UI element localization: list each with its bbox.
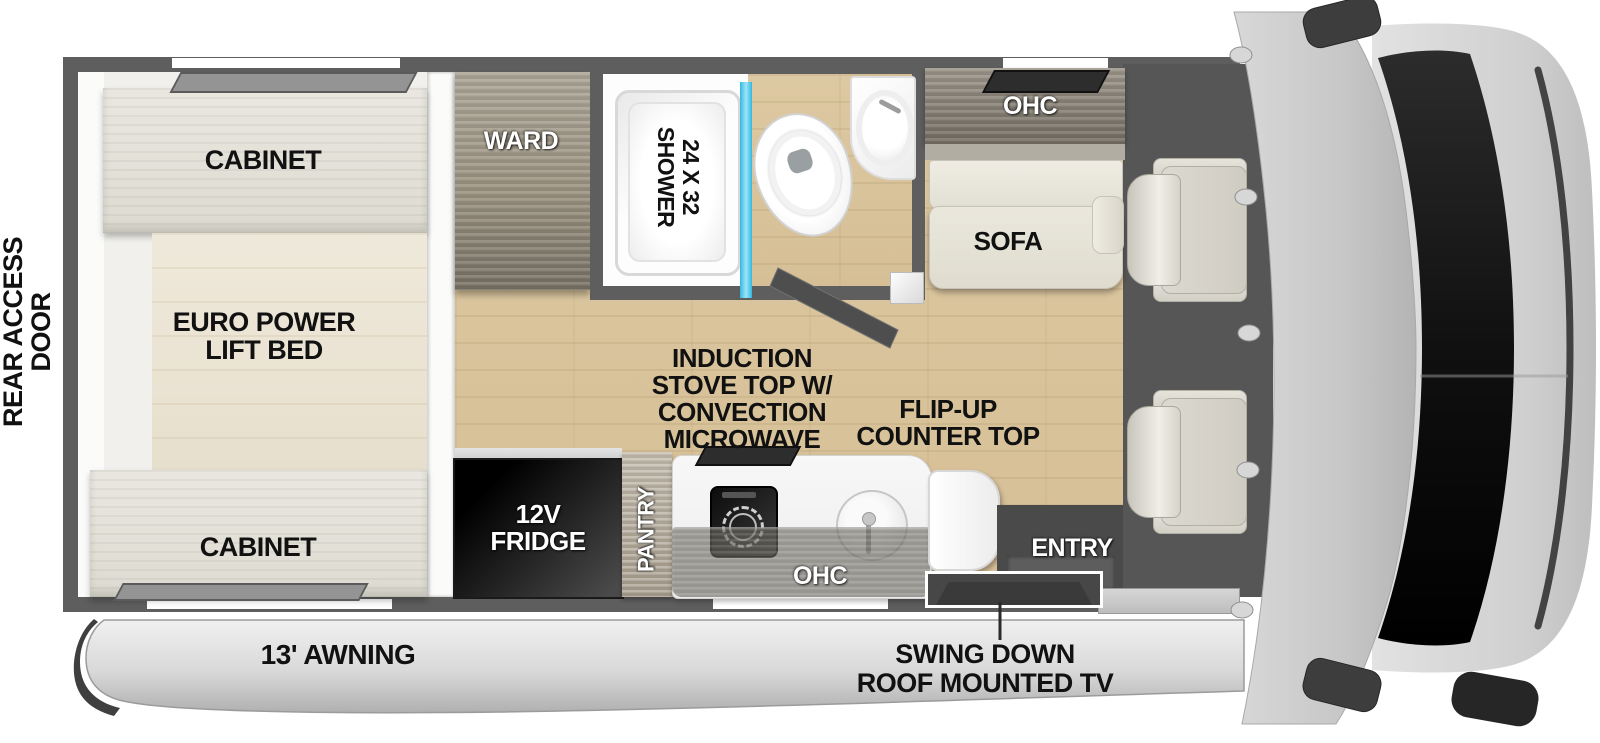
vent-bedroom-bottom-icon xyxy=(113,583,369,601)
side-mirror-bottom-icon xyxy=(1300,655,1384,714)
driver-seat xyxy=(1127,158,1245,300)
shower-glass xyxy=(740,82,752,298)
passenger-seat-backrest xyxy=(1127,406,1181,518)
cabinet-top-label: CABINET xyxy=(163,146,363,174)
tv-screen-icon xyxy=(936,582,1092,605)
tv-label-line1: SWING DOWN xyxy=(805,640,1165,669)
flip-up-counter xyxy=(928,470,1000,571)
window-front-top xyxy=(1003,58,1108,68)
bed-label-line1: EURO POWER xyxy=(144,308,384,336)
rear-wall xyxy=(63,57,78,612)
exterior-step xyxy=(1098,588,1240,614)
window-rear-top xyxy=(172,58,400,68)
stove-label-line2: STOVE TOP W/ xyxy=(592,372,892,399)
awning-label: 13' AWNING xyxy=(188,640,488,669)
sofa-armrest xyxy=(1092,196,1124,254)
entry-label: ENTRY xyxy=(1002,535,1142,561)
passenger-seat xyxy=(1127,390,1245,532)
shower-label-line1: 24 X 32 xyxy=(678,77,703,277)
pantry-label: PANTRY xyxy=(634,450,657,610)
bathroom-door-jamb xyxy=(890,272,924,304)
vent-bedroom-top-icon xyxy=(169,72,417,93)
front-wheel-icon xyxy=(1449,669,1542,729)
stove-control-icon xyxy=(722,492,756,498)
shower-label: 24 X 32 SHOWER xyxy=(653,77,703,277)
tv-label: SWING DOWN ROOF MOUNTED TV xyxy=(805,640,1165,698)
awning-left-edge xyxy=(74,619,120,716)
driver-seat-backrest xyxy=(1127,174,1181,286)
van-hood xyxy=(1372,24,1596,673)
windshield xyxy=(1378,51,1514,646)
window-kitchen-bottom xyxy=(713,599,888,609)
bed-label-line2: LIFT BED xyxy=(144,336,384,364)
fridge-label: 12V FRIDGE xyxy=(458,501,618,555)
rear-access-door-line1: REAR ACCESS xyxy=(0,222,27,442)
side-mirror-top-icon xyxy=(1300,0,1383,51)
tv-label-line2: ROOF MOUNTED TV xyxy=(805,669,1165,698)
cabinet-bottom-label: CABINET xyxy=(158,533,358,561)
vent-lounge-icon xyxy=(982,70,1110,93)
flip-up-label: FLIP-UP COUNTER TOP xyxy=(798,396,1098,450)
rv-floorplan-diagram: REAR ACCESS DOOR xyxy=(0,0,1600,743)
rear-access-door-line2: DOOR xyxy=(27,222,55,442)
lounge-shelf xyxy=(925,144,1125,160)
flip-up-label-line2: COUNTER TOP xyxy=(798,423,1098,450)
lounge-ohc-label: OHC xyxy=(980,93,1080,119)
stove-label-line1: INDUCTION xyxy=(592,345,892,372)
flip-up-label-line1: FLIP-UP xyxy=(798,396,1098,423)
shower-label-line2: SHOWER xyxy=(653,77,678,277)
rear-access-door-label: REAR ACCESS DOOR xyxy=(0,222,55,442)
wardrobe xyxy=(455,72,590,290)
hood-crease xyxy=(1538,70,1570,626)
fridge-label-line2: FRIDGE xyxy=(458,528,618,555)
kitchen-faucet-base-icon xyxy=(862,512,876,526)
fridge-label-line1: 12V xyxy=(458,501,618,528)
roof-mounted-tv xyxy=(925,571,1103,608)
sofa-label: SOFA xyxy=(928,228,1088,255)
bed-label: EURO POWER LIFT BED xyxy=(144,308,384,364)
wardrobe-label: WARD xyxy=(451,128,591,154)
kitchen-ohc-label: OHC xyxy=(770,563,870,589)
